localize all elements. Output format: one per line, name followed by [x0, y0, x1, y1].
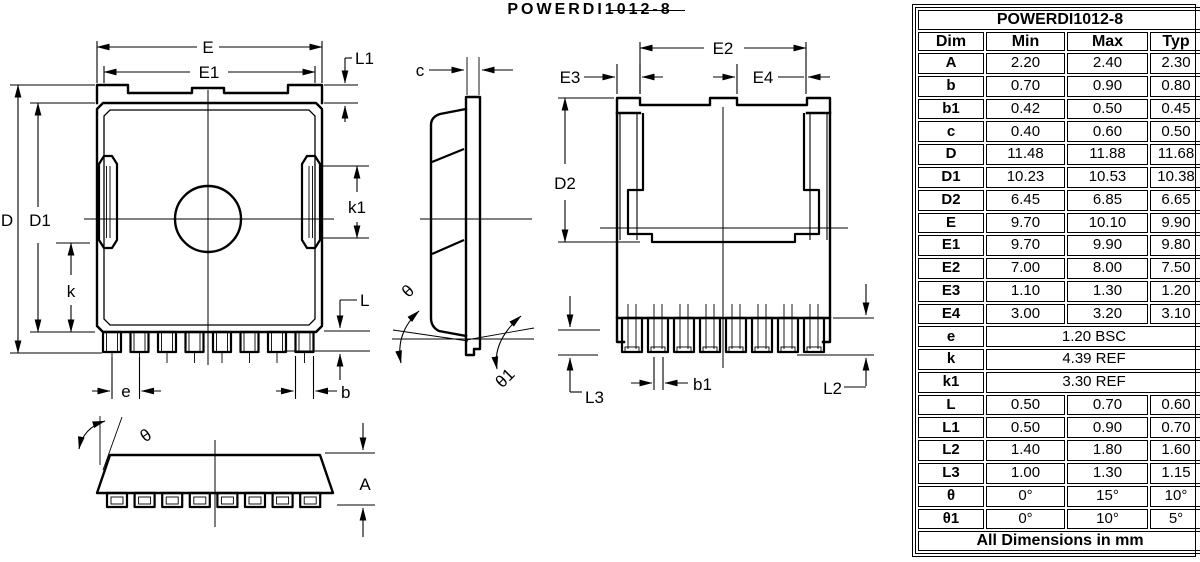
table-row: b0.700.900.80 [918, 76, 1200, 97]
package-body-inner-line [104, 110, 315, 325]
min-value-cell: 11.48 [986, 144, 1065, 165]
table-row: E19.709.909.80 [918, 235, 1200, 256]
typ-value-cell: 1.60 [1150, 440, 1200, 461]
label-theta: θ [398, 281, 418, 301]
label-L: L [360, 291, 369, 310]
typ-value-cell: 2.30 [1150, 53, 1200, 74]
mounting-tab-outline [97, 85, 322, 103]
typ-value-cell: 11.68 [1150, 144, 1200, 165]
table-row: k4.39 REF [918, 349, 1200, 370]
max-value-cell: 11.88 [1067, 144, 1148, 165]
label-e: e [121, 382, 130, 401]
left-side-notch [99, 156, 117, 248]
body-profile [431, 109, 466, 336]
span-value-cell: 1.20 BSC [986, 326, 1200, 347]
typ-value-cell: 0.50 [1150, 121, 1200, 142]
dimensions-table-grid: POWERDI1012-8 Dim Min Max Typ A2.202.402… [915, 7, 1200, 554]
typ-value-cell: 9.80 [1150, 235, 1200, 256]
col-header-min: Min [986, 32, 1065, 52]
min-value-cell: 9.70 [986, 235, 1065, 256]
table-row: D11.4811.8811.68 [918, 144, 1200, 165]
package-body-outline [97, 103, 322, 332]
min-value-cell: 0.70 [986, 76, 1065, 97]
label-D: D [1, 211, 13, 230]
front-view: E E1 L1 D D1 k k1 L e b [1, 38, 374, 402]
min-value-cell: 0.50 [986, 395, 1065, 416]
table-row: L21.401.801.60 [918, 440, 1200, 461]
min-value-cell: 0° [986, 486, 1065, 507]
label-E2: E2 [713, 39, 734, 58]
dimensions-table: POWERDI1012-8 Dim Min Max Typ A2.202.402… [912, 4, 1196, 557]
dim-name-cell: b1 [918, 99, 984, 120]
dim-name-cell: k1 [918, 372, 984, 393]
table-row: k13.30 REF [918, 372, 1200, 393]
label-E: E [202, 38, 213, 57]
min-value-cell: 0.40 [986, 121, 1065, 142]
dim-name-cell: E4 [918, 304, 984, 325]
table-row: E9.7010.109.90 [918, 213, 1200, 234]
typ-value-cell: 0.70 [1150, 417, 1200, 438]
table-row: E43.003.203.10 [918, 304, 1200, 325]
min-value-cell: 0.50 [986, 417, 1065, 438]
max-value-cell: 10° [1067, 509, 1148, 530]
dim-name-cell: b [918, 76, 984, 97]
typ-value-cell: 0.80 [1150, 76, 1200, 97]
col-header-typ: Typ [1150, 32, 1200, 52]
label-D2: D2 [554, 174, 576, 193]
label-c: c [416, 61, 425, 80]
max-value-cell: 1.30 [1067, 281, 1148, 302]
label-b: b [341, 383, 350, 402]
dim-name-cell: θ [918, 486, 984, 507]
bottom-side-view: θ A [79, 416, 375, 537]
table-row: c0.400.600.50 [918, 121, 1200, 142]
typ-value-cell: 7.50 [1150, 258, 1200, 279]
label-L1: L1 [355, 49, 374, 68]
min-value-cell: 1.40 [986, 440, 1065, 461]
max-value-cell: 0.70 [1067, 395, 1148, 416]
span-value-cell: 3.30 REF [986, 372, 1200, 393]
table-row: E31.101.301.20 [918, 281, 1200, 302]
typ-value-cell: 1.20 [1150, 281, 1200, 302]
dim-name-cell: D [918, 144, 984, 165]
max-value-cell: 1.80 [1067, 440, 1148, 461]
typ-value-cell: 10° [1150, 486, 1200, 507]
col-header-max: Max [1067, 32, 1148, 52]
table-row: b10.420.500.45 [918, 99, 1200, 120]
max-value-cell: 3.20 [1067, 304, 1148, 325]
max-value-cell: 8.00 [1067, 258, 1148, 279]
dim-name-cell: k [918, 349, 984, 370]
label-E3: E3 [560, 68, 581, 87]
max-value-cell: 0.90 [1067, 76, 1148, 97]
label-L3: L3 [585, 388, 604, 407]
max-value-cell: 0.60 [1067, 121, 1148, 142]
max-value-cell: 2.40 [1067, 53, 1148, 74]
max-value-cell: 0.50 [1067, 99, 1148, 120]
label-D1: D1 [29, 211, 51, 230]
label-b1: b1 [693, 375, 712, 394]
table-header-row: Dim Min Max Typ [918, 32, 1200, 52]
table-row: L31.001.301.15 [918, 463, 1200, 484]
table-row: L10.500.900.70 [918, 417, 1200, 438]
table-row: D110.2310.5310.38 [918, 167, 1200, 188]
right-side-notch [302, 156, 320, 248]
label-theta1: θ1 [492, 365, 519, 392]
dim-name-cell: L1 [918, 417, 984, 438]
dim-name-cell: A [918, 53, 984, 74]
lead-profile [466, 97, 480, 355]
min-value-cell: 9.70 [986, 213, 1065, 234]
dim-name-cell: D2 [918, 190, 984, 211]
typ-value-cell: 3.10 [1150, 304, 1200, 325]
typ-value-cell: 9.90 [1150, 213, 1200, 234]
dim-name-cell: L [918, 395, 984, 416]
max-value-cell: 6.85 [1067, 190, 1148, 211]
label-k1: k1 [348, 198, 366, 217]
typ-value-cell: 10.38 [1150, 167, 1200, 188]
dim-name-cell: E1 [918, 235, 984, 256]
max-value-cell: 0.90 [1067, 417, 1148, 438]
table-row: A2.202.402.30 [918, 53, 1200, 74]
bottom-dimension-lines [79, 416, 375, 537]
table-row: θ10°10°5° [918, 509, 1200, 530]
min-value-cell: 0° [986, 509, 1065, 530]
max-value-cell: 1.30 [1067, 463, 1148, 484]
min-value-cell: 1.10 [986, 281, 1065, 302]
bottom-pads [107, 493, 320, 507]
min-value-cell: 7.00 [986, 258, 1065, 279]
max-value-cell: 10.10 [1067, 213, 1148, 234]
dim-name-cell: E3 [918, 281, 984, 302]
max-value-cell: 10.53 [1067, 167, 1148, 188]
typ-value-cell: 6.65 [1150, 190, 1200, 211]
min-value-cell: 10.23 [986, 167, 1065, 188]
typ-value-cell: 1.15 [1150, 463, 1200, 484]
table-row: L0.500.700.60 [918, 395, 1200, 416]
dim-name-cell: L2 [918, 440, 984, 461]
label-L2: L2 [823, 379, 842, 398]
table-title-row: POWERDI1012-8 [918, 10, 1200, 30]
back-view: E2 E3 E4 D2 b1 L3 L2 [554, 39, 874, 407]
label-E1: E1 [199, 63, 220, 82]
typ-value-cell: 5° [1150, 509, 1200, 530]
dim-name-cell: c [918, 121, 984, 142]
table-footer: All Dimensions in mm [918, 531, 1200, 551]
dim-name-cell: θ1 [918, 509, 984, 530]
table-title: POWERDI1012-8 [918, 10, 1200, 30]
max-value-cell: 15° [1067, 486, 1148, 507]
table-row: e1.20 BSC [918, 326, 1200, 347]
label-k: k [67, 282, 76, 301]
dim-name-cell: E [918, 213, 984, 234]
typ-value-cell: 0.60 [1150, 395, 1200, 416]
min-value-cell: 1.00 [986, 463, 1065, 484]
dim-name-cell: e [918, 326, 984, 347]
side-view: c θ θ1 [392, 57, 534, 392]
dim-name-cell: L3 [918, 463, 984, 484]
table-footer-row: All Dimensions in mm [918, 531, 1200, 551]
label-A: A [359, 475, 371, 494]
dim-name-cell: D1 [918, 167, 984, 188]
col-header-dim: Dim [918, 32, 984, 52]
table-row: E27.008.007.50 [918, 258, 1200, 279]
dim-name-cell: E2 [918, 258, 984, 279]
min-value-cell: 6.45 [986, 190, 1065, 211]
label-theta-bottom: θ [137, 425, 156, 446]
table-row: θ0°15°10° [918, 486, 1200, 507]
max-value-cell: 9.90 [1067, 235, 1148, 256]
front-dimension-lines [10, 41, 370, 399]
span-value-cell: 4.39 REF [986, 349, 1200, 370]
min-value-cell: 3.00 [986, 304, 1065, 325]
min-value-cell: 0.42 [986, 99, 1065, 120]
typ-value-cell: 0.45 [1150, 99, 1200, 120]
table-row: D26.456.856.65 [918, 190, 1200, 211]
package-drawing-page: POWERDI1012-8 [0, 0, 1200, 562]
min-value-cell: 2.20 [986, 53, 1065, 74]
label-E4: E4 [753, 68, 774, 87]
